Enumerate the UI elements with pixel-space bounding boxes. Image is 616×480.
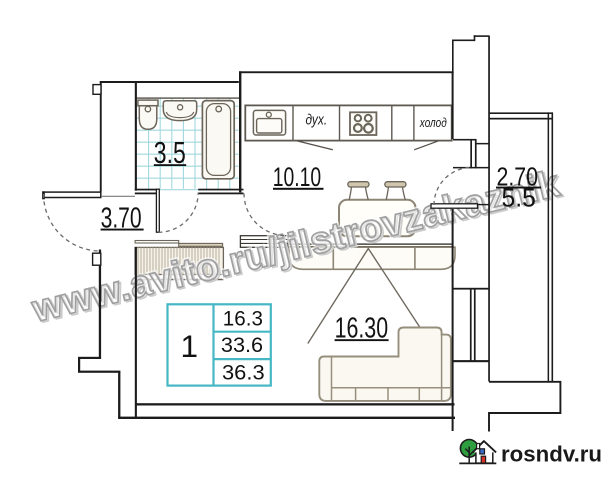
svg-text:10.10: 10.10 — [273, 162, 321, 192]
svg-text:холод: холод — [419, 116, 447, 131]
svg-text:дух.: дух. — [306, 111, 328, 127]
svg-text:36.3: 36.3 — [222, 360, 265, 385]
svg-text:rosndv.ru: rosndv.ru — [501, 441, 602, 466]
svg-text:5.5: 5.5 — [502, 184, 536, 213]
svg-text:33.6: 33.6 — [221, 332, 263, 357]
svg-text:16.3: 16.3 — [223, 307, 263, 331]
svg-text:1: 1 — [181, 328, 199, 364]
